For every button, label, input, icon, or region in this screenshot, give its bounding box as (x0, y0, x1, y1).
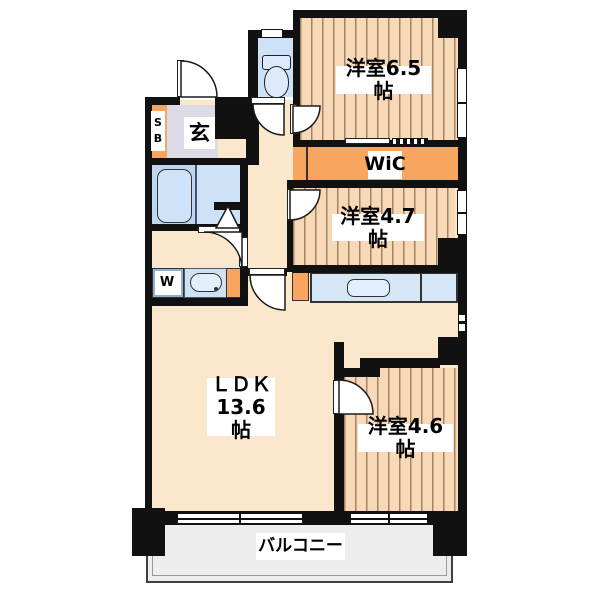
room-label-bedroom-top: 洋室6.5帖 (336, 66, 431, 94)
door-arc-bedroom-bottom (339, 380, 373, 414)
room-label-bedroom-mid: 洋室4.7帖 (332, 214, 424, 241)
room-label-wic: WiC (368, 151, 402, 179)
ldk-size: 13.6帖 (207, 396, 275, 442)
room-label-ldk: ＬＤＫ 13.6帖 (207, 378, 275, 436)
ldk-name: ＬＤＫ (211, 373, 271, 396)
washer-label: W (157, 274, 177, 292)
shoe-box-label: SB (151, 111, 165, 151)
door-arcs-overlay (0, 0, 600, 600)
room-label-bedroom-bottom: 洋室4.6帖 (358, 424, 453, 452)
floorplan: 洋室6.5帖 WiC 洋室4.7帖 ＬＤＫ 13.6帖 洋室4.6帖 バルコニー… (0, 0, 600, 600)
door-arc-bedroom-mid (290, 190, 320, 220)
room-label-balcony: バルコニー (256, 533, 345, 560)
bath-folding-door-icon (216, 206, 239, 228)
door-arc-ldk (250, 275, 285, 310)
door-arc-washroom (204, 232, 242, 270)
door-arc-bedroom-top (293, 106, 320, 133)
room-label-entrance: 玄 (184, 117, 215, 149)
door-arc-toilet (253, 104, 284, 135)
door-arc-entrance (181, 61, 217, 97)
